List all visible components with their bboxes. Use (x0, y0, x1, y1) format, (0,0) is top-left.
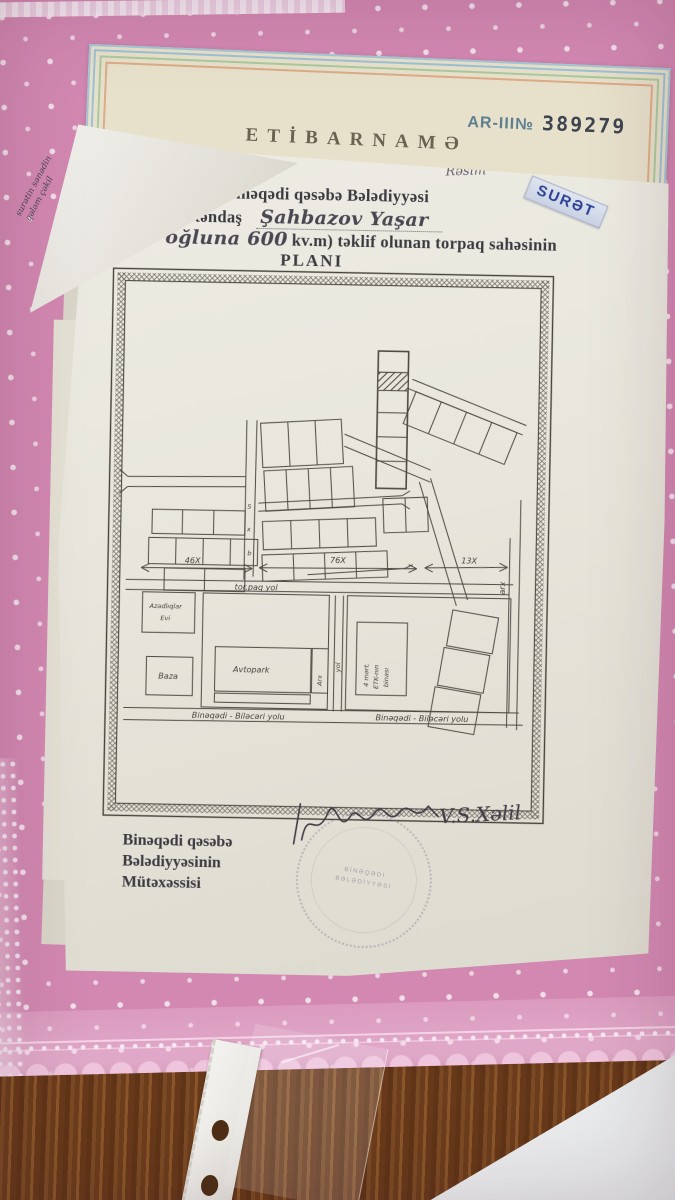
etk-label-3: binası (382, 668, 390, 688)
diagonal-road-plots (396, 379, 527, 466)
etk-label-2: ETK-nın (372, 665, 380, 689)
plan-document: Rəsim SURƏT Binəqədi rayonu Binəqədi qəs… (48, 130, 675, 994)
serial-series: AR-III№ (467, 114, 534, 134)
photo-of-documents: AR-III№389279 ETİBARNAMƏ Rəsim SURƏT Bin… (0, 0, 675, 1200)
measurement-right: 13X (461, 557, 477, 566)
upper-plot-block (261, 419, 344, 467)
measurement-left: 46X (185, 556, 201, 565)
avtopark-plot (201, 593, 329, 709)
plan-border (103, 268, 553, 823)
strip-label: Arx (316, 675, 324, 687)
certificate-serial: AR-III№389279 (467, 108, 627, 139)
land-plan-drawing: arx 5 x b (101, 266, 555, 825)
measurement-middle: 76X (330, 556, 346, 565)
road-mark: x (246, 525, 251, 533)
east-plot-row-2 (262, 551, 388, 581)
copy-stamp-text: SURƏT (534, 182, 598, 221)
footer-line-1: Binəqədi qəsəbə (122, 829, 232, 852)
lace-border-left (0, 758, 27, 1077)
etk-plot (345, 596, 511, 713)
target-plot-strip (376, 351, 409, 489)
copy-stamp: SURƏT (523, 175, 608, 228)
two-cell-building (383, 497, 429, 533)
footer-line-3: Mütəxəssisi (122, 871, 232, 894)
etk-label-1: 4 mərt. (362, 663, 370, 687)
bottom-road-label-right: Binəqədi - Biləcəri yolu (375, 713, 468, 724)
east-plot-row-1 (262, 518, 376, 550)
baza-label: Baza (158, 672, 178, 681)
avtopark-label: Avtopark (232, 665, 270, 675)
utility-box-label-2: Evi (160, 614, 170, 622)
middle-road-label: yol (334, 662, 342, 673)
serial-number: 389279 (542, 111, 627, 139)
wedge-lines (344, 434, 432, 482)
upper-plot-block-2 (264, 466, 355, 511)
utility-box (142, 592, 195, 633)
right-edge-label: arx (498, 581, 507, 594)
signature-name: V.S.Xəlil (439, 800, 522, 828)
punched-hole (199, 1174, 220, 1198)
road-mark: b (247, 549, 251, 557)
footer-signatory-title: Binəqədi qəsəbə Bələdiyyəsinin Mütəxəssi… (122, 829, 233, 894)
road-mark: 5 (247, 503, 251, 511)
top-road-label: tor.paq yol (235, 582, 279, 592)
certificate-title: ETİBARNAMƏ (245, 125, 468, 156)
punched-hole (210, 1119, 231, 1143)
upper-left-road (119, 469, 246, 496)
footer-line-2: Bələdiyyəsinin (122, 850, 232, 873)
utility-box-label-1: Azadlıqlar (148, 602, 183, 611)
top-main-road (126, 577, 514, 597)
bottom-road-label-left: Binəqədi - Biləcəri yolu (192, 711, 285, 722)
middle-road (333, 595, 343, 711)
